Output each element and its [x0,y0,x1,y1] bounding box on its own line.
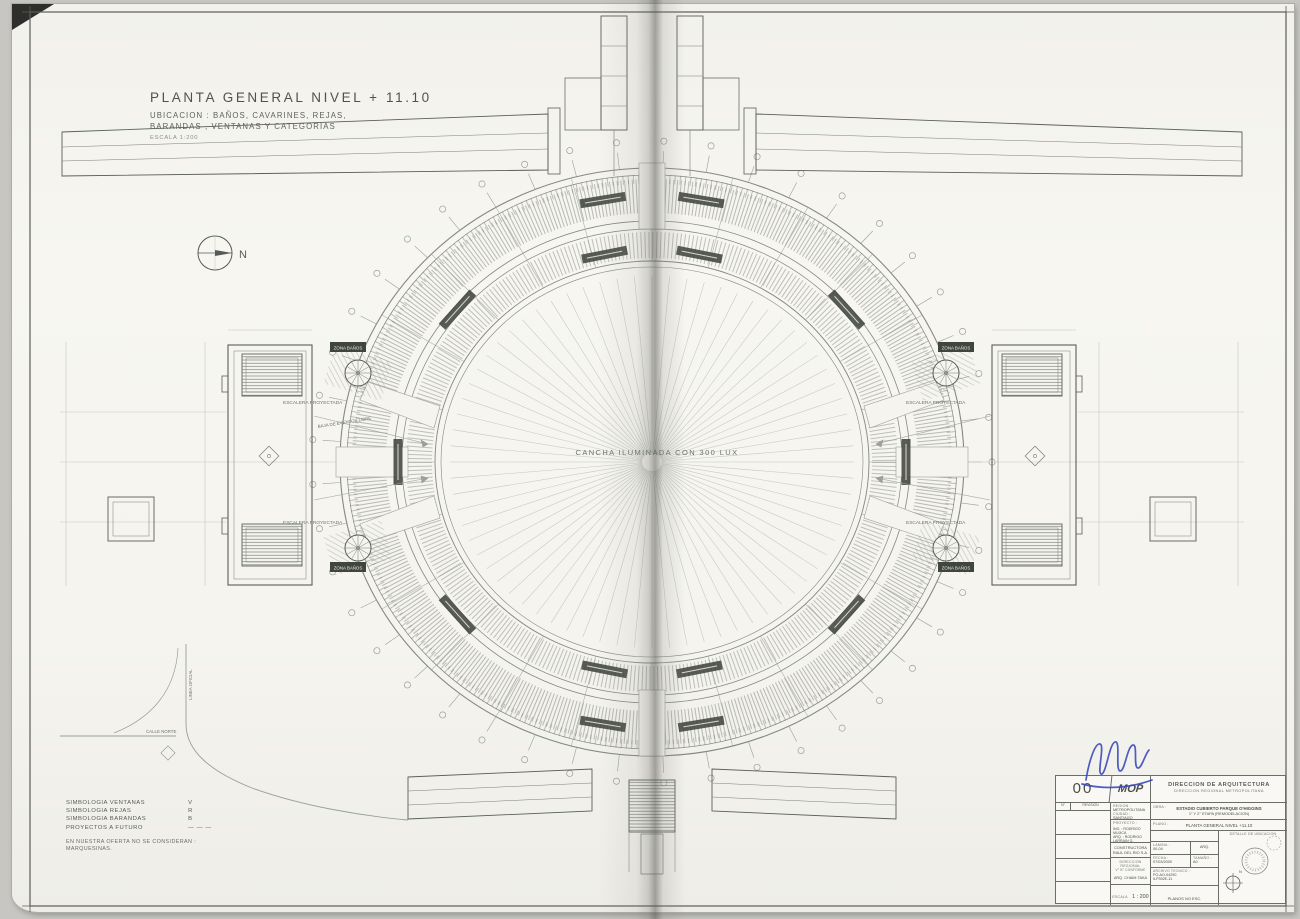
stair-label-br: ESCALERA PROYECTADA [906,520,966,526]
org-line2: DIRECCION REGIONAL METROPOLITANA [1151,788,1287,793]
archivo-cell: ARCHIVO TECNICO : PO-AO-04290 ILP302E-11 [1150,867,1218,885]
page-title: PLANTA GENERAL NIVEL + 11.10 [150,90,432,105]
stair-label-tl: ESCALERA PROYECTADA [283,400,343,406]
page-subtitle-1: UBICACION : BAÑOS, CAVARINES, REJAS, [150,111,432,120]
north-label: N [239,249,247,261]
top-tower-right [677,16,739,176]
stadium-seating-rings [310,138,995,786]
legend-label: SIMBOLOGIA VENTANAS [66,799,186,807]
director-line3: ARQ. CHAIM TAKA [1111,876,1150,880]
legend-row: SIMBOLOGIA VENTANAS V [66,799,212,807]
lamina2-value: ARQ. [1191,845,1218,849]
rev-header: REVISION [1070,802,1110,810]
legend-row: SIMBOLOGIA REJAS R [66,807,212,815]
site-road [60,644,408,820]
titleblock-org: DIRECCION DE ARQUITECTURA DIRECCION REGI… [1150,776,1287,802]
bottom-ramp-right [712,769,896,819]
legend-note: EN NUESTRA OFERTA NO SE CONSIDERAN : MAR… [66,839,212,853]
legend-symbol: V [188,800,192,806]
signature [1072,730,1164,792]
rev-row [1056,858,1110,881]
top-ramp-right [744,108,1242,176]
zone-label-bl: ZONA BAÑOS [334,566,363,571]
legend-symbol: R [188,808,193,814]
plano-cell: PLANO : PLANTA GENERAL NIVEL +11.10 [1150,819,1287,830]
plano-label: PLANO : [1153,822,1169,826]
rev-row [1056,881,1110,905]
planos-value: PLANOS NO ESC. [1168,896,1202,901]
legend-note-line2: MARQUESINAS. [66,846,212,853]
page-scale-note: ESCALA 1:200 [150,135,432,141]
constructora-line2: RAUL DEL RIO S.A. [1111,850,1150,855]
fecha-value: 07/03/2000 [1153,860,1190,864]
road-label-vertical: LINEA OFICIAL [188,669,193,700]
legend-label: SIMBOLOGIA BARANDAS [66,815,186,823]
plano-value: PLANTA GENERAL NIVEL +11.10 [1151,823,1287,828]
director-line2: V° B° CONFORME [1111,868,1150,872]
legend-symbol: — — — [188,825,211,831]
legend-symbol: B [188,816,192,822]
tamano-value: A0 [1193,860,1218,864]
lamina-value: 00-04 [1153,847,1190,851]
legend-note-line1: EN NUESTRA OFERTA NO SE CONSIDERAN : [66,839,212,846]
bottom-central-stair [629,780,675,874]
legend-row: SIMBOLOGIA BARANDAS B [66,815,212,823]
legend-row: PROYECTOS A FUTURO — — — [66,824,212,832]
north-arrow [198,236,232,270]
side-building-right [992,345,1196,585]
location-sketch: N [1219,831,1287,897]
rev-no-header: N° [1056,802,1070,810]
obra-label: OBRA : [1153,805,1166,809]
stair-label-bl: ESCALERA PROYECTADA [283,520,343,526]
tamano-cell: TAMAÑO : A0 [1190,854,1218,867]
obra-line2: 1° Y 2° ETAPA (REMODELACION) [1151,811,1287,816]
rev-row [1056,810,1110,834]
proyecto-label: PROYECTO : [1113,821,1149,825]
arq-value: ARQ. : RODRIGO LARRAIN G. [1113,835,1149,842]
zone-label-tr: ZONA BAÑOS [942,346,971,351]
rev-row [1056,834,1110,858]
escala-label: ESCALA [1112,895,1127,899]
location-fields: REGION : METROPOLITANA CIUDAD : SANTIAGO… [1110,802,1150,819]
lamina2-cell: ARQ. [1190,841,1218,854]
side-building-left [108,345,312,585]
director-regional: DIRECCION REGIONAL V° B° CONFORME ARQ. C… [1110,857,1150,884]
legend-label: SIMBOLOGIA REJAS [66,807,186,815]
top-tower-left [565,16,627,176]
dibujo-cell: DIBUJO : A.C.R. [1150,830,1218,841]
sketch-north-label: N [1239,869,1242,874]
titleblock: 00 MOP DIRECCION DE ARQUITECTURA DIRECCI… [1055,775,1286,904]
ing-value: ING. : RODRIGO MUJICA [1113,827,1149,835]
stair-label-tr: ESCALERA PROYECTADA [906,400,966,406]
bottom-ramp-left [408,769,592,819]
field-label: CANCHA ILUMINADA CON 300 LUX [576,448,739,457]
escala-cell: ESCALA 1 : 200 [1110,884,1150,905]
obra-cell: OBRA : ESTADIO CUBIERTO PARQUE O'HIGGINS… [1150,802,1287,819]
archivo-value2: ILP302E-11 [1153,877,1218,881]
escala-value: 1 : 200 [1132,894,1149,900]
page-subtitle-2: BARANDAS , VENTANAS Y CATEGORIAS [150,122,432,131]
director-line1: DIRECCION REGIONAL [1111,860,1150,868]
zone-label-tl: ZONA BAÑOS [334,346,363,351]
fecha-cell: FECHA : 07/03/2000 [1150,854,1190,867]
legend-label: PROYECTOS A FUTURO [66,824,186,832]
road-label-horizontal: CALLE NORTE [146,729,176,734]
project-team: PROYECTO : ING. : RODRIGO MUJICA ARQ. : … [1110,819,1150,842]
constructora: CONSTRUCTORA RAUL DEL RIO S.A. [1110,842,1150,857]
ubicacion-cell: DETALLE DE UBICACION N [1218,830,1287,905]
legend: SIMBOLOGIA VENTANAS V SIMBOLOGIA REJAS R… [66,799,212,853]
drawing-title-block: PLANTA GENERAL NIVEL + 11.10 UBICACION :… [150,90,432,141]
lamina-cell: LAMINA : 00-04 [1150,841,1190,854]
planos-cell: PLANOS NO ESC. [1150,885,1218,905]
zone-label-br: ZONA BAÑOS [942,566,971,571]
